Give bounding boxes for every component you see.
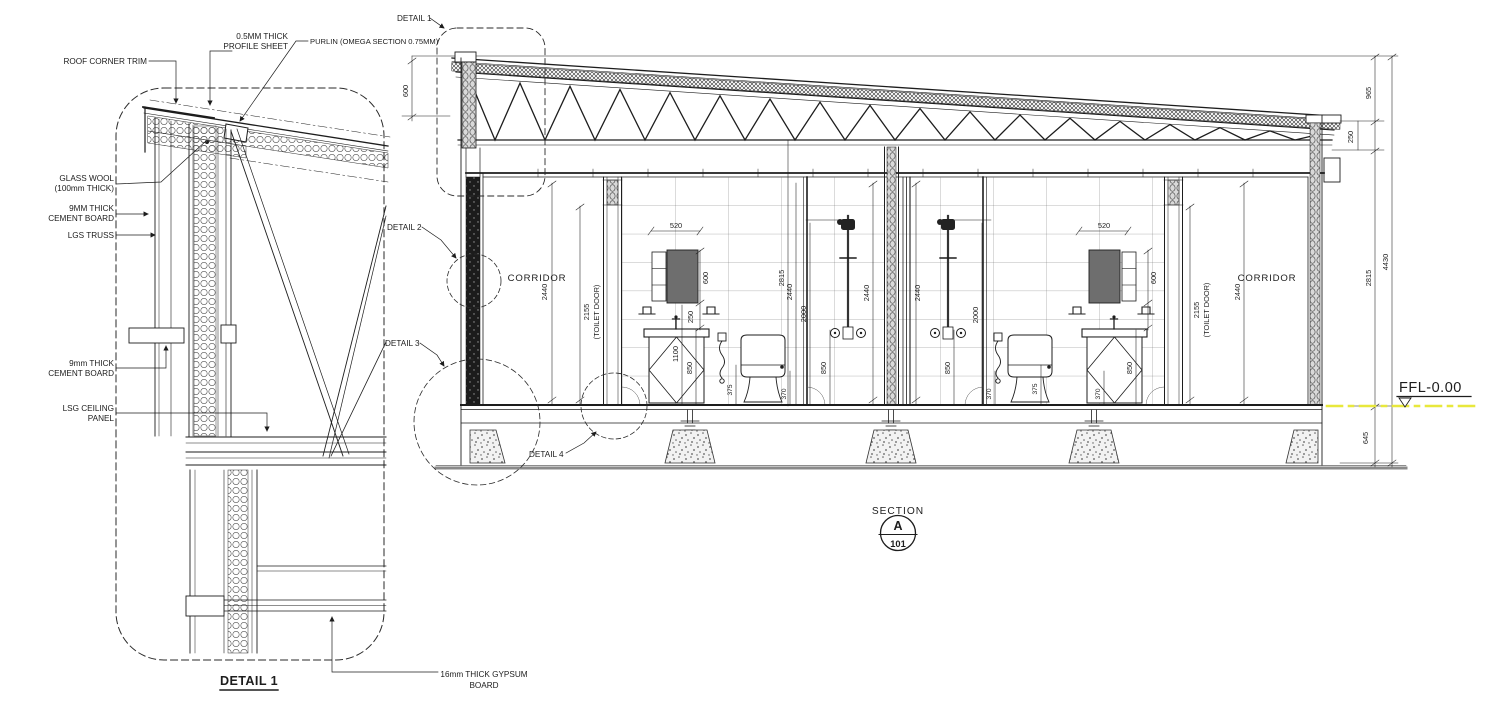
ffl-level: FFL-0.00: [1327, 380, 1478, 407]
architectural-section-drawing: ROOF CORNER TRIM 0.5MM THICK PROFILE SHE…: [0, 0, 1500, 706]
dim-valve-left: 850: [819, 362, 828, 374]
callout-detail4-label: DETAIL 4: [529, 450, 564, 459]
dim-roof-depth: 600: [401, 85, 410, 97]
dim-corridor-left: 2440: [540, 284, 549, 300]
detail1-roof: [143, 100, 390, 182]
glass-wool-label-2: (100mm THICK): [55, 184, 115, 193]
purlin-label: PURLIN (OMEGA SECTION 0.75MM): [310, 37, 439, 46]
detail1-title: DETAIL 1: [220, 674, 278, 688]
dim-stall-left: 2440: [862, 285, 871, 301]
shelf-unit-left: [652, 252, 666, 301]
dim-spray-h-left: 1100: [671, 346, 680, 362]
dim-mirror-w-right: 520: [1098, 221, 1110, 230]
mirror-cabinet-left: [667, 250, 698, 303]
profile-sheet-label-2: PROFILE SHEET: [223, 42, 288, 51]
roof-end-post-left: [462, 62, 476, 148]
detail-callouts: DETAIL 1 DETAIL 2 DETAIL 3 DETAIL 4: [385, 14, 647, 485]
dim-vanity-h-left: 850: [685, 362, 694, 374]
dim-shower-h-left: 2000: [799, 306, 808, 322]
dim-curb-left: 370: [781, 388, 788, 399]
dim-wc-off-right: 375: [1032, 383, 1039, 394]
floor-beam-stubs: [681, 410, 1103, 430]
dim-mirror-gap-left: 250: [686, 311, 695, 323]
dim-bay-left: 2440: [785, 284, 794, 300]
roof-corner-trim-label: ROOF CORNER TRIM: [63, 57, 147, 66]
door-frame-right: [1164, 177, 1183, 405]
roof-assembly: [412, 52, 1398, 182]
cement-board-lower-label-1: 9mm THICK: [69, 359, 114, 368]
dim-eave-right: 250: [1346, 131, 1355, 143]
section-title-block: SECTION A 101: [872, 506, 924, 551]
glass-wool-column: [194, 126, 216, 436]
wall-left: [466, 177, 480, 405]
detail1-ceiling: [186, 437, 386, 465]
footings: [470, 430, 1318, 463]
detail1-truss-webs: [231, 129, 386, 458]
dim-total-h: 4430: [1381, 254, 1390, 270]
lgs-truss-label: LGS TRUSS: [68, 231, 115, 240]
section-letter: A: [893, 519, 902, 533]
dim-wc-off-left: 375: [727, 384, 734, 395]
dim-mirror-h-right: 600: [1149, 272, 1158, 284]
detail1-wall-lower: [186, 470, 386, 653]
dim-shower-h-right: 2000: [971, 307, 980, 323]
dim-corridor-right: 2440: [1233, 284, 1242, 300]
glass-wool-column-lower: [228, 470, 248, 653]
eave-bracket-right: [1324, 158, 1340, 182]
dim-door-left: 2155: [582, 304, 591, 320]
dim-curb-right2: 370: [1095, 388, 1102, 399]
dim-roof-right: 965: [1364, 87, 1373, 99]
cement-board-upper-label-2: CEMENT BOARD: [48, 214, 114, 223]
corridor-left-label: CORRIDOR: [508, 273, 567, 284]
glass-wool-label-1: GLASS WOOL: [59, 174, 114, 183]
cement-board-lower-label-2: CEMENT BOARD: [48, 369, 114, 378]
dim-door-right: 2155: [1192, 302, 1201, 318]
lsg-ceiling-label-1: LSG CEILING: [63, 404, 114, 413]
gypsum-label-1: 16mm THICK GYPSUM: [440, 670, 527, 679]
cement-board-upper-label-1: 9MM THICK: [69, 204, 114, 213]
corridor-right-label: CORRIDOR: [1238, 273, 1297, 284]
gypsum-label-2: BOARD: [469, 681, 498, 690]
dim-mirror-w-left: 520: [670, 221, 682, 230]
roof-truss-webs: [470, 80, 1320, 140]
mirror-cabinet-right: [1089, 250, 1120, 303]
shelf-unit-right: [1122, 252, 1136, 301]
callout-detail1-label: DETAIL 1: [397, 14, 432, 23]
callout-detail3-label: DETAIL 3: [385, 339, 420, 348]
floor-foundation: [436, 405, 1406, 468]
dim-plinth: 645: [1361, 432, 1370, 444]
dim-valve-right: 850: [943, 362, 952, 374]
wall-right: [1310, 123, 1320, 405]
dim-door-right-note: (TOILET DOOR): [1202, 283, 1211, 338]
roof-corner-trim-piece: [143, 107, 214, 118]
dim-curb-right: 370: [986, 388, 993, 399]
dim-wall-h-left: 2815: [777, 270, 786, 286]
dim-mirror-h-left: 600: [701, 272, 710, 284]
profile-sheet-label-1: 0.5MM THICK: [236, 32, 288, 41]
detail1-view: ROOF CORNER TRIM 0.5MM THICK PROFILE SHE…: [48, 32, 528, 690]
section-view: DETAIL 1 DETAIL 2 DETAIL 3 DETAIL 4 CORR…: [385, 14, 1478, 551]
wall-center: [887, 147, 896, 405]
dim-stall-right: 2440: [913, 285, 922, 301]
dim-door-left-note: (TOILET DOOR): [592, 285, 601, 340]
callout-detail2-label: DETAIL 2: [387, 223, 422, 232]
dim-vanity-h-right: 850: [1125, 362, 1134, 374]
dim-wall-h-right: 2815: [1364, 270, 1373, 286]
lsg-ceiling-label-2: PANEL: [88, 414, 115, 423]
section-sheet-number: 101: [890, 539, 906, 549]
door-frame-left: [603, 177, 622, 405]
drawing-sheet: ROOF CORNER TRIM 0.5MM THICK PROFILE SHE…: [0, 0, 1500, 706]
detail1-wall-upper: [129, 118, 236, 436]
ffl-label: FFL-0.00: [1399, 380, 1462, 396]
